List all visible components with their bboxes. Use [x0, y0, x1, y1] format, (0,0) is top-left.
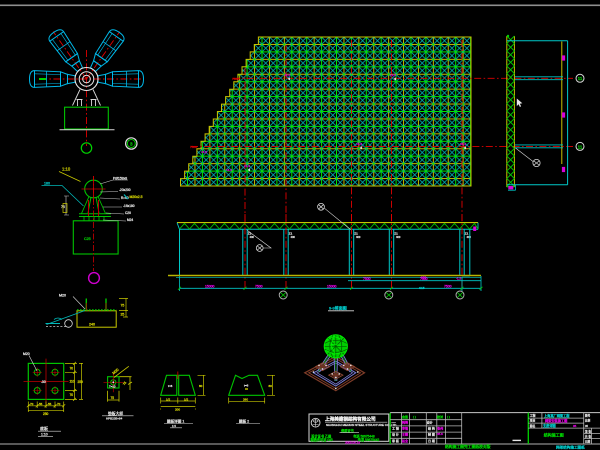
svg-text:70: 70	[57, 402, 61, 406]
svg-text:80: 80	[199, 384, 203, 388]
svg-text:qj: qj	[288, 77, 291, 81]
svg-text:网架结构施工图纸: 网架结构施工图纸	[556, 445, 585, 450]
svg-text:9-9剪面图: 9-9剪面图	[329, 305, 347, 311]
svg-text:腿板 2: 腿板 2	[239, 419, 249, 424]
svg-text:25: 25	[121, 313, 125, 317]
svg-text:腿板详图 1: 腿板详图 1	[167, 419, 184, 424]
svg-text:Z1: Z1	[354, 232, 358, 236]
svg-text:1:10: 1:10	[62, 167, 71, 172]
svg-text:05: 05	[573, 424, 577, 428]
svg-text:制造许可证 045: 制造许可证 045	[311, 437, 333, 442]
svg-text:240: 240	[89, 322, 95, 326]
svg-text:-30: -30	[41, 380, 46, 384]
svg-text:1:5: 1:5	[172, 424, 176, 428]
svg-text:qj: qj	[464, 146, 467, 150]
svg-text:网架安装施工图: 网架安装施工图	[545, 418, 567, 423]
svg-text:05.6: 05.6	[437, 432, 443, 436]
svg-text:11: 11	[578, 76, 583, 81]
svg-text:校对: 校对	[437, 414, 443, 419]
svg-text:7500: 7500	[363, 277, 371, 281]
svg-text:M20x2.5: M20x2.5	[130, 195, 143, 199]
svg-text:审 核: 审 核	[392, 438, 399, 443]
svg-text:图名: 图名	[530, 424, 536, 428]
svg-text:──: ──	[391, 420, 397, 424]
svg-text:75: 75	[121, 304, 125, 308]
svg-text:75: 75	[111, 396, 115, 400]
svg-text:-1.5: -1.5	[456, 277, 462, 281]
svg-text:上海美建钢结构有限公司: 上海美建钢结构有限公司	[325, 416, 376, 423]
svg-text:日 期: 日 期	[428, 438, 435, 443]
svg-text:C20: C20	[125, 211, 131, 215]
svg-text:15000: 15000	[205, 285, 215, 289]
svg-text:qj: qj	[248, 168, 251, 172]
svg-text:共 张: 共 张	[585, 434, 591, 438]
svg-text:结构施工图: 结构施工图	[544, 432, 564, 438]
svg-text:-16x180: -16x180	[123, 204, 135, 208]
svg-text:t=8: t=8	[244, 384, 249, 388]
svg-text:400: 400	[356, 235, 361, 239]
svg-text:M20: M20	[59, 294, 66, 298]
svg-text:7500: 7500	[232, 77, 239, 81]
svg-text:李强: 李强	[402, 426, 408, 431]
svg-text:×1.2: ×1.2	[201, 150, 207, 154]
svg-text:1:10: 1:10	[41, 432, 48, 436]
svg-text:设计: 设计	[427, 419, 433, 424]
svg-text:7500: 7500	[444, 285, 452, 289]
svg-text:王刚: 王刚	[402, 432, 408, 437]
svg-text:70: 70	[70, 367, 74, 371]
svg-text:250: 250	[78, 380, 84, 384]
svg-text:日期: 日期	[585, 440, 591, 444]
svg-text:结 构: 结 构	[428, 426, 435, 431]
svg-text:SHANGHAI MEIJIAN STEEL STRUCTU: SHANGHAI MEIJIAN STEEL STRUCTURE CO.,LTD	[326, 423, 397, 427]
svg-text:上海某厂网架工程: 上海某厂网架工程	[544, 413, 570, 418]
svg-text:设 计: 设 计	[392, 432, 399, 437]
svg-text:( ): ( )	[447, 415, 450, 419]
svg-text:-20x200: -20x200	[119, 188, 131, 192]
svg-text:比例: 比例	[585, 419, 591, 423]
svg-text:支座详图: 支座详图	[543, 423, 556, 428]
svg-text:1/2: 1/2	[184, 397, 189, 401]
svg-text:制 图: 制 图	[428, 432, 435, 437]
svg-text:结构施工图完工图纸校对版: 结构施工图完工图纸校对版	[445, 444, 491, 449]
svg-text:传真 58675442: 传真 58675442	[358, 437, 380, 442]
svg-text:250: 250	[43, 412, 49, 416]
svg-text:×1.2: ×1.2	[226, 168, 232, 172]
svg-text:韩明: 韩明	[402, 419, 408, 424]
svg-text:55: 55	[39, 402, 43, 406]
svg-text:底板: 底板	[40, 425, 48, 431]
svg-text:T=10: T=10	[109, 385, 116, 389]
svg-text:( ): ( )	[413, 415, 416, 419]
svg-text:180: 180	[44, 182, 50, 186]
svg-text:11: 11	[578, 144, 583, 149]
svg-text:400: 400	[396, 235, 401, 239]
svg-text:260: 260	[243, 398, 248, 402]
svg-text:70: 70	[30, 402, 34, 406]
svg-text:80: 80	[269, 384, 273, 388]
svg-text:赵全: 赵全	[402, 438, 408, 443]
svg-text:400: 400	[250, 235, 255, 239]
svg-text:张伟: 张伟	[437, 426, 443, 431]
svg-text:3: 3	[130, 141, 133, 146]
svg-text:qj: qj	[394, 77, 397, 81]
svg-text:C15: C15	[419, 286, 425, 290]
svg-text:会签: 会签	[402, 414, 408, 419]
svg-text:15000: 15000	[327, 285, 337, 289]
svg-text:第 张: 第 张	[585, 429, 591, 433]
svg-text:Z1: Z1	[289, 232, 293, 236]
svg-text:400: 400	[291, 235, 296, 239]
svg-text:Z1: Z1	[465, 232, 469, 236]
svg-text:1/2: 1/2	[166, 397, 171, 401]
svg-text:PØ159x8: PØ159x8	[113, 177, 127, 181]
svg-text:HPB235×64: HPB235×64	[106, 416, 123, 420]
svg-text:t=8: t=8	[168, 384, 173, 388]
svg-text:55: 55	[48, 402, 52, 406]
svg-text:2005.06.18: 2005.06.18	[345, 440, 360, 444]
svg-text:70: 70	[70, 393, 74, 397]
svg-text:qj: qj	[360, 146, 363, 150]
svg-text:-150: -150	[420, 275, 426, 279]
svg-text:工 程: 工 程	[392, 426, 399, 431]
svg-text:M20: M20	[23, 352, 30, 356]
svg-text:7500: 7500	[190, 145, 197, 149]
svg-text:垫板大样: 垫板大样	[108, 411, 123, 416]
svg-text:M24: M24	[127, 218, 133, 222]
svg-text:200: 200	[175, 408, 180, 412]
svg-text:7500: 7500	[255, 285, 263, 289]
svg-text:110: 110	[70, 380, 75, 384]
svg-text:C25: C25	[84, 237, 91, 241]
svg-text:资质证书: 资质证书	[341, 428, 355, 433]
svg-text:Z1: Z1	[394, 232, 398, 236]
svg-text:工程: 工程	[530, 414, 536, 418]
svg-text:项目: 项目	[530, 419, 536, 423]
svg-text:图号: 图号	[585, 414, 591, 418]
svg-text:400: 400	[467, 235, 472, 239]
